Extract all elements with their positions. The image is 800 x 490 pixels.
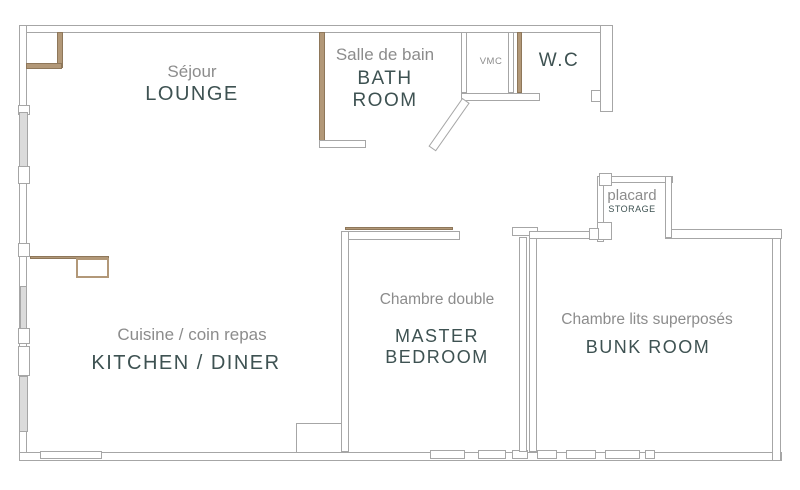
master-top-wood: [345, 227, 453, 230]
wall-hall-top: [461, 93, 540, 101]
wall-storage-right: [665, 176, 672, 238]
bathroom-label-en2: ROOM: [352, 91, 417, 110]
master-bedroom-label-en2: BEDROOM: [385, 348, 489, 366]
vmc-label: VMC: [480, 57, 503, 67]
window-bottom: [566, 450, 596, 459]
kitchen-label-fr: Cuisine / coin repas: [117, 326, 266, 343]
wall-top-outer: [19, 25, 613, 33]
window-bottom: [40, 451, 102, 459]
storage-corner-cap: [589, 228, 599, 240]
lounge-label-en: LOUNGE: [145, 84, 238, 104]
bathroom-label-fr: Salle de bain: [336, 46, 434, 63]
wall-bottom-outer: [19, 452, 782, 461]
window-bottom: [478, 450, 506, 459]
storage-label-fr: placard: [607, 188, 656, 203]
wall-wc-right: [600, 25, 613, 112]
window-cap: [18, 243, 30, 257]
wall-vmc-left: [461, 32, 467, 93]
bunk-room-label-fr: Chambre lits superposés: [561, 312, 732, 328]
bathroom-label-en1: BATH: [357, 69, 412, 88]
window-cap: [18, 328, 30, 344]
floor-plan: Séjour LOUNGE Salle de bain BATH ROOM VM…: [0, 0, 800, 490]
wall-master-right: [519, 237, 527, 452]
wall-bathroom-left: [319, 32, 325, 148]
window: [19, 112, 28, 168]
bunk-room-label-en: BUNK ROOM: [586, 338, 711, 356]
wc-door-stop: [591, 90, 601, 102]
fixture-box: [296, 423, 344, 453]
window-bottom: [645, 450, 655, 459]
wall-master-left: [341, 231, 349, 452]
window-cap: [18, 346, 30, 376]
storage-corner-cap: [597, 222, 612, 240]
window-bottom: [605, 450, 640, 459]
wood-stub-horizontal: [26, 63, 62, 69]
lounge-label-fr: Séjour: [167, 63, 216, 80]
master-bedroom-label-en1: MASTER: [395, 327, 479, 345]
master-bedroom-label-fr: Chambre double: [380, 292, 495, 308]
wall-vmc-right: [508, 32, 514, 93]
storage-label-en: STORAGE: [608, 205, 655, 214]
wall-right-outer: [772, 229, 781, 461]
window-bottom: [537, 450, 557, 459]
storage-corner-cap: [599, 173, 612, 186]
wall-wc-left-wood: [517, 32, 522, 93]
wall-bunk-top-right: [665, 229, 782, 239]
wc-label: W.C: [539, 51, 579, 70]
kitchen-label-en: KITCHEN / DINER: [91, 353, 280, 373]
wall-bunk-left: [529, 237, 537, 452]
kitchen-counter-box: [76, 258, 109, 278]
window-bottom: [430, 450, 465, 459]
wall-master-top: [341, 231, 460, 240]
window: [19, 376, 28, 432]
window-cap: [18, 166, 30, 184]
wall-bathroom-bottom: [319, 140, 366, 148]
door-leaf-open: [428, 98, 469, 151]
